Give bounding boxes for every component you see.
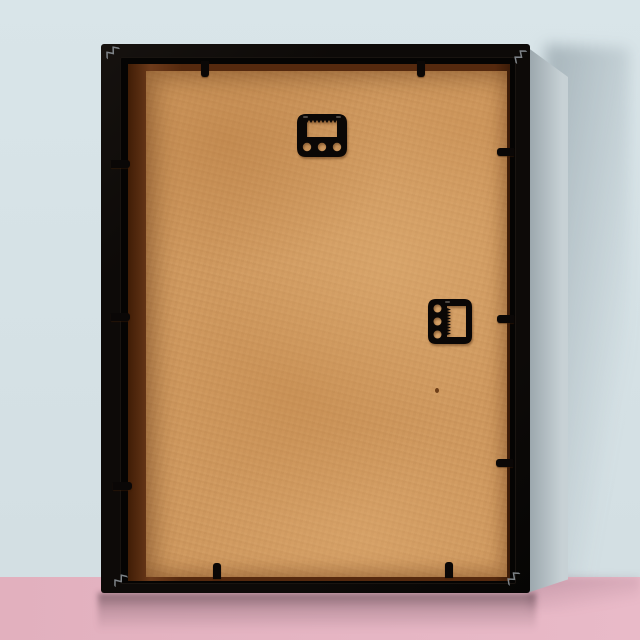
board-blemish-dot (435, 388, 439, 393)
flexi-tab-right-upper (497, 148, 514, 156)
sawtooth-hanger-top (297, 114, 347, 161)
flexi-tab-top-right (417, 61, 425, 77)
flexi-tab-left-middle (111, 313, 130, 321)
flexi-tab-top-left (201, 61, 209, 77)
flexi-tab-right-middle (497, 315, 514, 323)
flexi-tab-left-upper (111, 160, 130, 168)
flexi-tab-right-lower (496, 459, 513, 467)
frame-side-panel (527, 47, 568, 593)
frame-floor-reflection (98, 593, 536, 631)
flexi-tab-bottom-right (445, 562, 453, 578)
flexi-tab-bottom-left (213, 563, 221, 579)
sawtooth-hanger-side (428, 299, 472, 348)
photo-stage (0, 0, 640, 640)
flexi-tab-left-lower (113, 482, 132, 490)
